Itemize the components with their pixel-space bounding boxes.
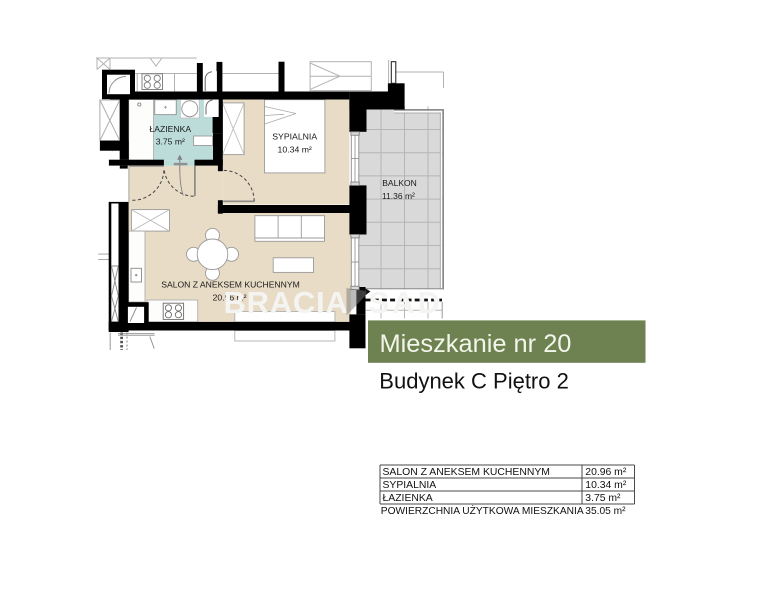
svg-text:SYPIALNIA: SYPIALNIA [383, 480, 437, 491]
svg-text:BRACIA: BRACIA [224, 285, 349, 320]
svg-text:Budynek C Piętro 2: Budynek C Piętro 2 [379, 369, 569, 394]
svg-text:Mieszkanie nr 20: Mieszkanie nr 20 [380, 330, 572, 358]
svg-text:SYPIALNIA: SYPIALNIA [272, 131, 317, 141]
svg-text:POWIERZCHNIA UŻYTKOWA MIESZKAN: POWIERZCHNIA UŻYTKOWA MIESZKANIA [381, 504, 584, 517]
svg-text:10.34 m²: 10.34 m² [585, 480, 627, 491]
svg-text:ŁAZIENKA: ŁAZIENKA [150, 124, 192, 134]
svg-text:SAD: SAD [369, 285, 443, 320]
svg-text:11.36 m²: 11.36 m² [382, 191, 415, 201]
svg-text:BALKON: BALKON [382, 178, 417, 188]
svg-text:ŁAZIENKA: ŁAZIENKA [383, 493, 433, 504]
svg-text:SALON Z ANEKSEM KUCHENNYM: SALON Z ANEKSEM KUCHENNYM [383, 467, 550, 478]
svg-text:35.05 m²: 35.05 m² [585, 506, 626, 517]
svg-text:3.75 m²: 3.75 m² [156, 136, 185, 146]
svg-text:20.96 m²: 20.96 m² [585, 467, 627, 478]
svg-text:10.34 m²: 10.34 m² [278, 145, 312, 155]
svg-text:3.75 m²: 3.75 m² [585, 493, 621, 504]
